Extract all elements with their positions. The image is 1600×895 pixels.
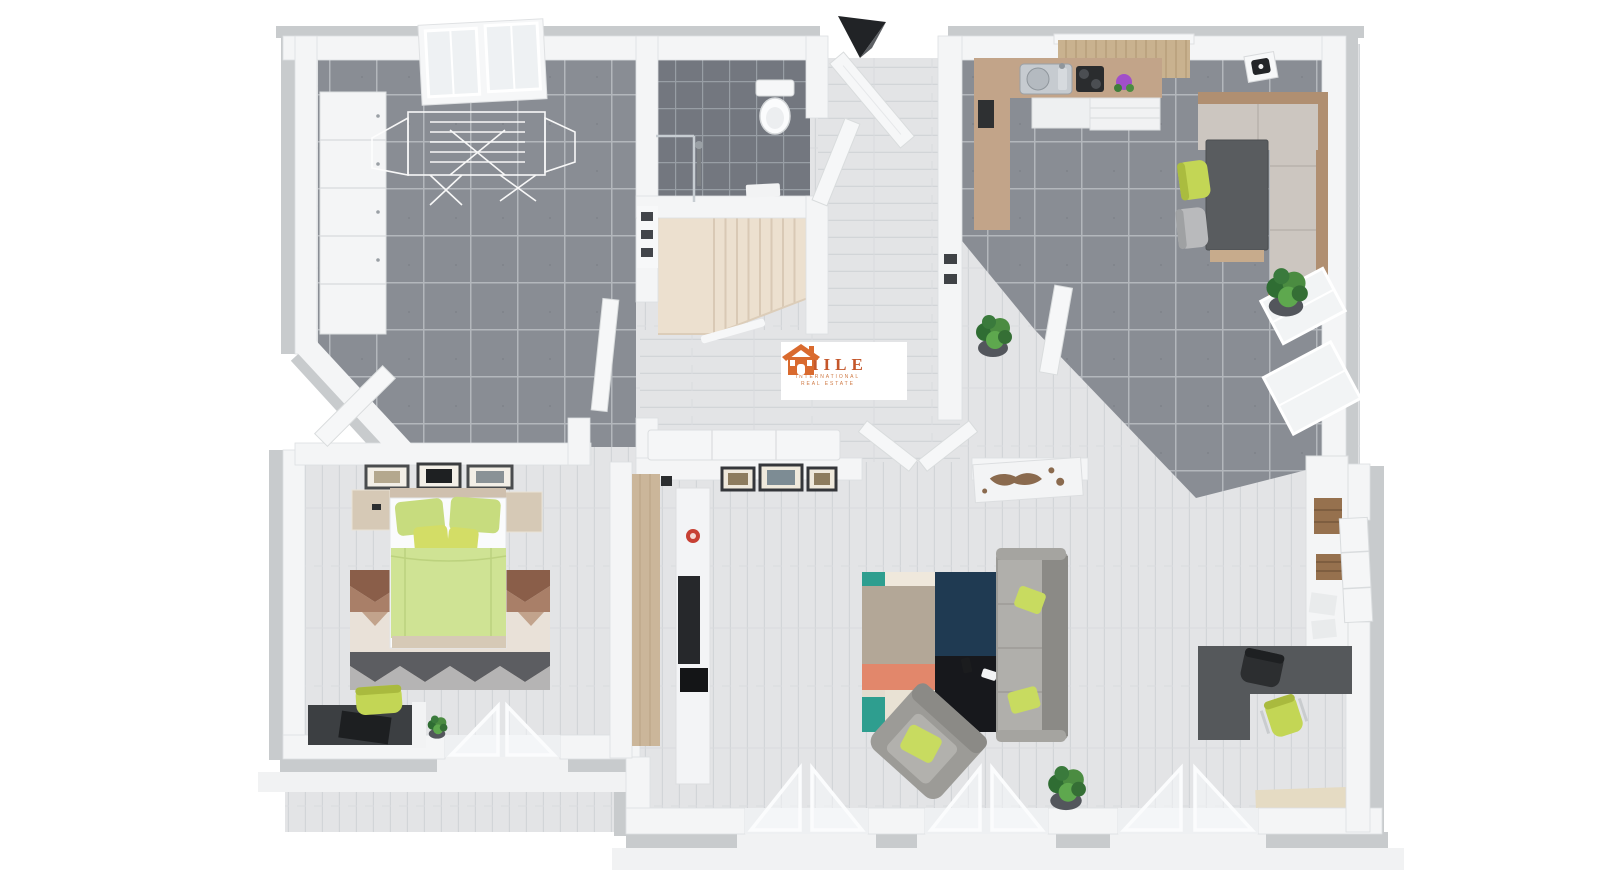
wood-crate: [1314, 498, 1342, 534]
cooktop-icon: [1076, 66, 1104, 92]
bedroom-desk-chair: [355, 684, 403, 715]
coffee-maker: [978, 100, 994, 128]
wall-speaker: [661, 476, 672, 486]
dining-chair-gray: [1175, 207, 1209, 250]
nightstand-right: [502, 492, 542, 532]
utility-cabinets: [320, 92, 386, 334]
wardrobe: [632, 474, 660, 746]
sectional-sofa: [996, 548, 1068, 742]
av-console: [680, 668, 708, 692]
bath-mat: [746, 183, 781, 198]
office-window: [1339, 517, 1372, 622]
floorplan-render: SMILE INTERNATIONAL REAL ESTATE: [0, 0, 1600, 895]
light-switch: [944, 254, 957, 264]
bedroom-picture-frames: [366, 464, 512, 488]
bathroom-floor: [656, 56, 810, 204]
house-logo-icon: [781, 342, 821, 376]
electric-panel: [637, 206, 658, 268]
toilet-icon: [756, 80, 794, 134]
tv: [678, 576, 700, 664]
brand-logo-card: SMILE INTERNATIONAL REAL ESTATE: [781, 342, 907, 400]
double-bed: [390, 488, 506, 648]
dining-table: [1206, 140, 1268, 250]
light-switch: [944, 274, 957, 284]
map-sideboard: [973, 457, 1083, 502]
floorplan-canvas: [0, 0, 1600, 895]
dining-bench: [1210, 250, 1264, 262]
living-picture-frames: [722, 465, 836, 490]
smoke-detector-icon: [1244, 52, 1278, 83]
skylight-icon: [418, 19, 547, 105]
brand-subtitle-line2: REAL ESTATE: [801, 382, 855, 387]
tv-cabinet: [676, 488, 710, 784]
nightstand-left: [352, 490, 390, 530]
wood-crate: [1316, 554, 1342, 580]
dining-chair-lime: [1177, 159, 1212, 201]
nightstand-phone: [372, 504, 381, 510]
kitchen-sink-icon: [1020, 63, 1072, 94]
hall-sideboard: [648, 430, 840, 460]
